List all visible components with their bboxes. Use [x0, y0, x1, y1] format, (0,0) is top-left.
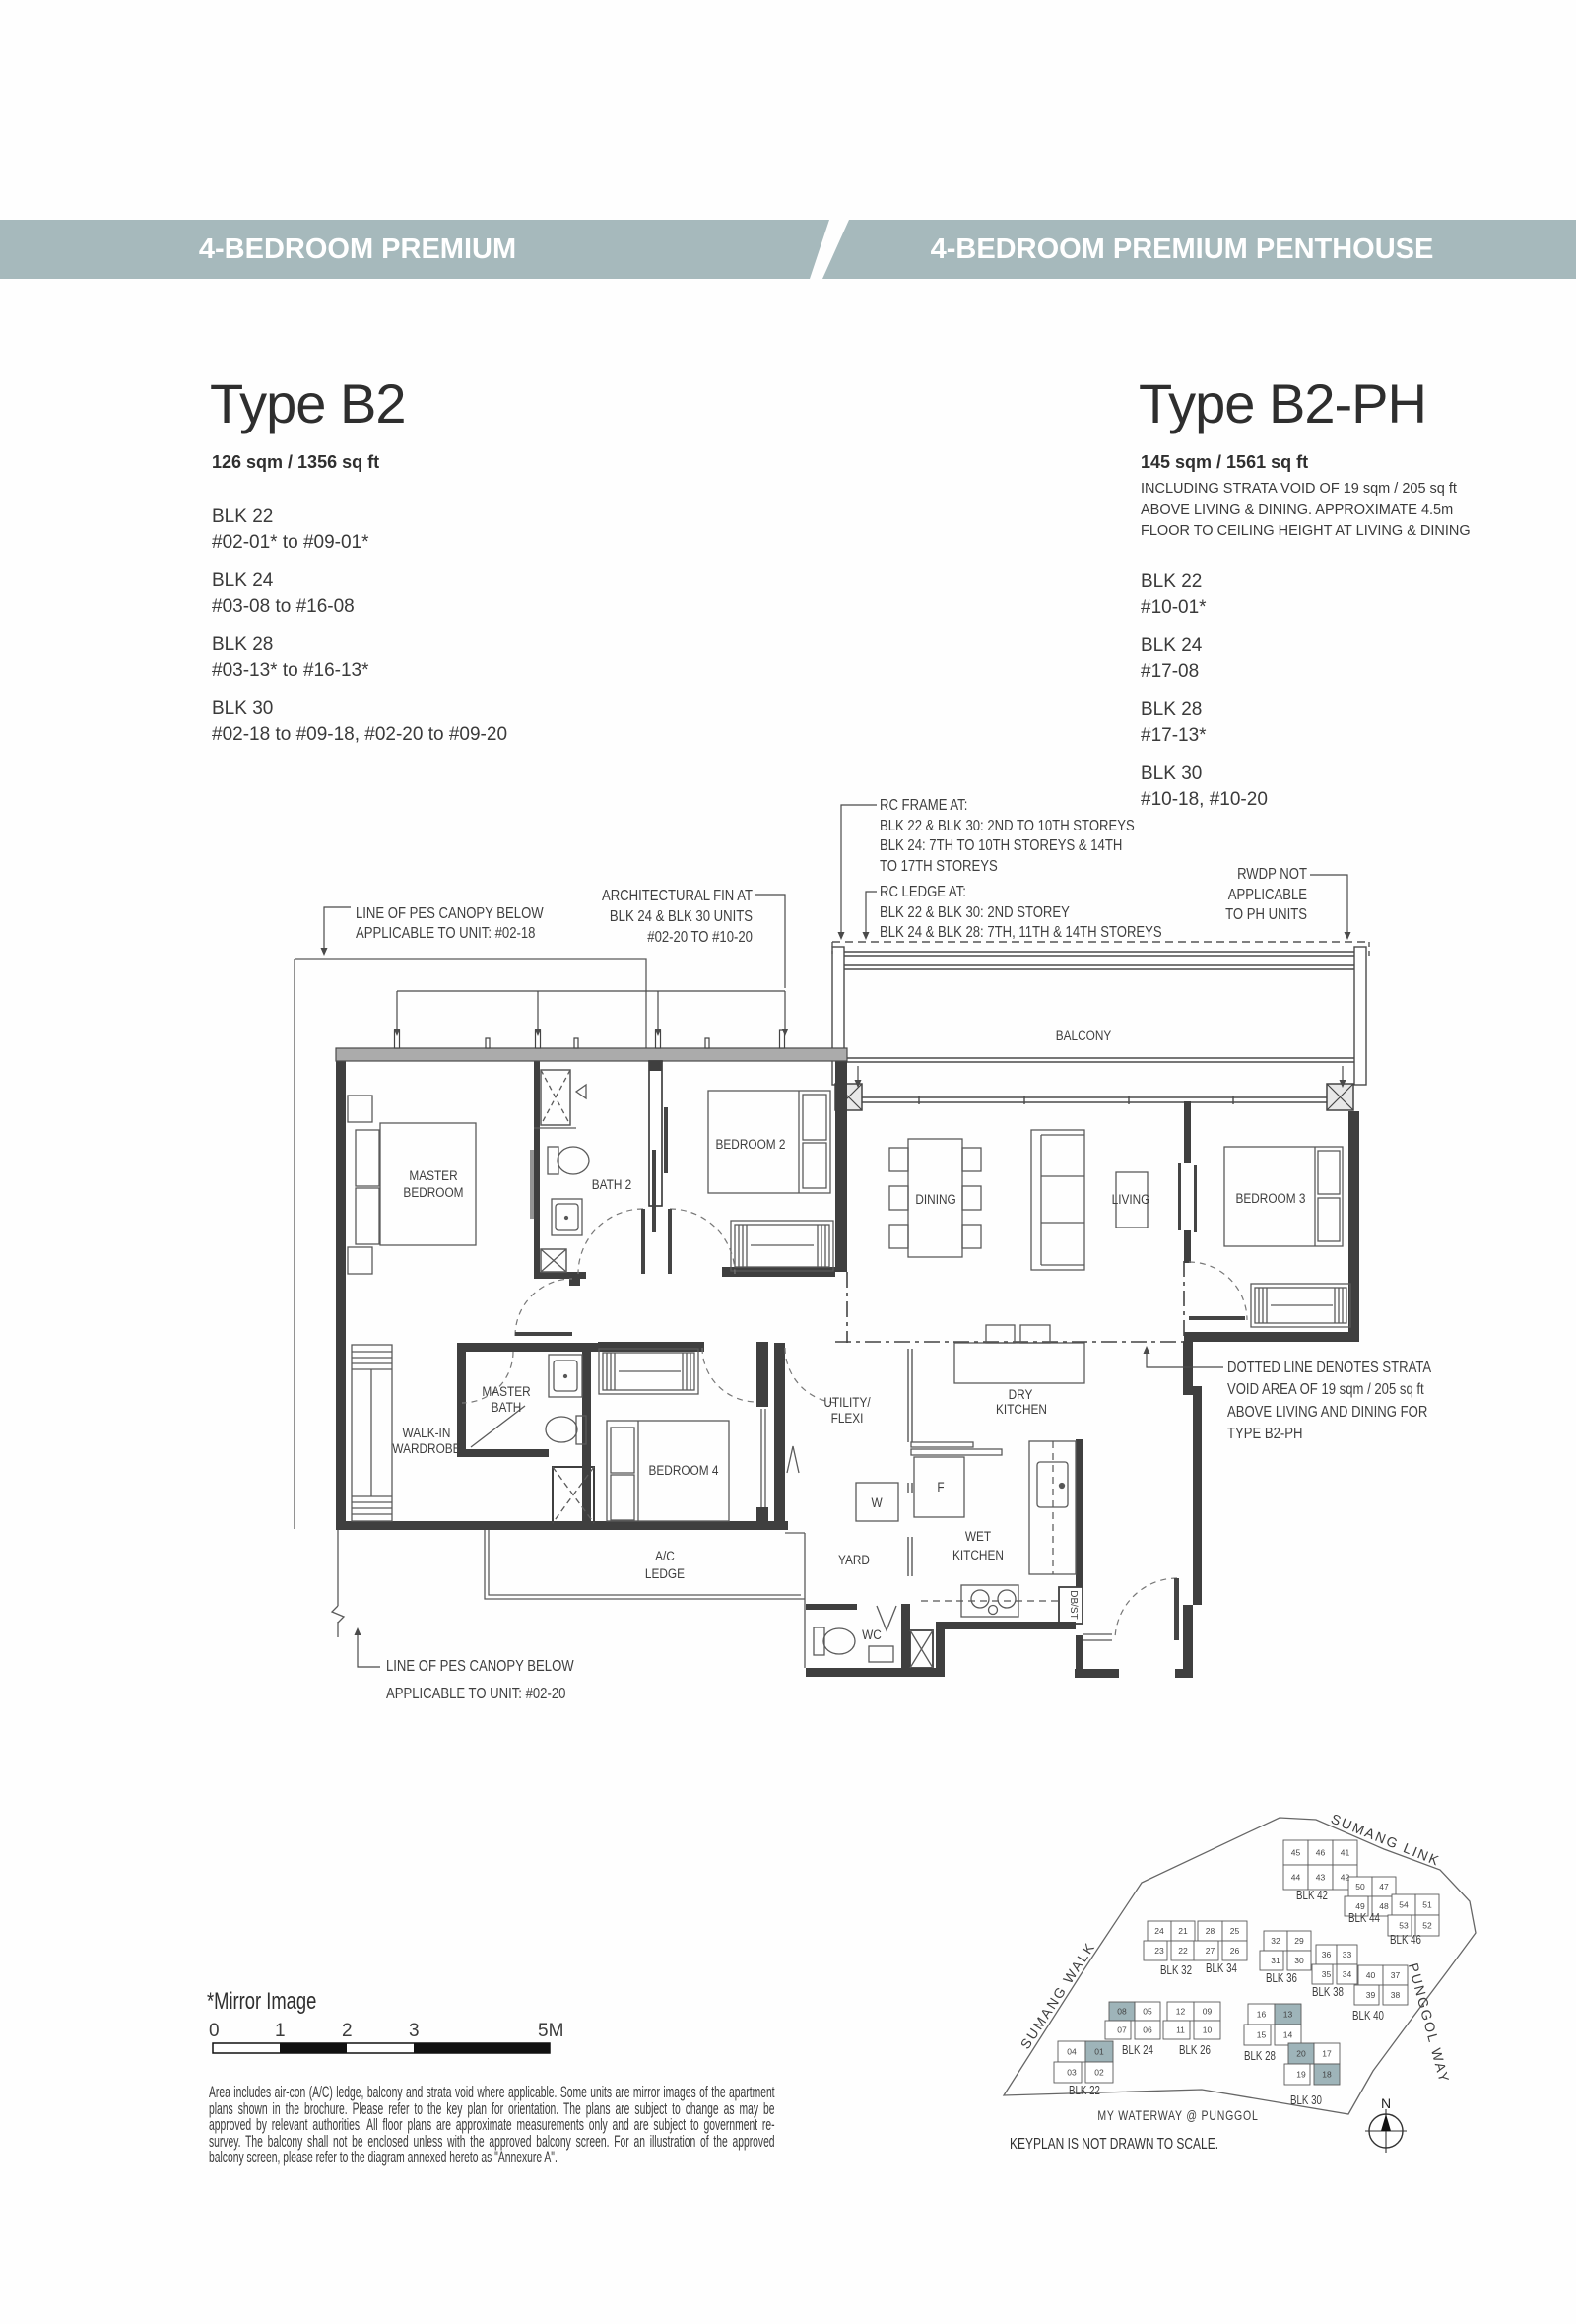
svg-text:38: 38 [1391, 1990, 1401, 2000]
svg-text:#02-20 TO #10-20: #02-20 TO #10-20 [647, 929, 753, 946]
svg-text:46: 46 [1316, 1848, 1326, 1858]
svg-text:WARDROBE: WARDROBE [392, 1440, 461, 1456]
svg-text:23: 23 [1154, 1946, 1164, 1956]
svg-text:KITCHEN: KITCHEN [952, 1547, 1004, 1562]
svg-text:YARD: YARD [838, 1552, 870, 1567]
svg-text:18: 18 [1322, 2070, 1332, 2080]
svg-text:BLK 30: BLK 30 [1290, 2094, 1322, 2107]
svg-text:39: 39 [1366, 1990, 1376, 2000]
svg-text:32: 32 [1271, 1936, 1280, 1946]
svg-text:BATH 2: BATH 2 [592, 1176, 632, 1192]
svg-text:SUMANG WALK: SUMANG WALK [1018, 1939, 1098, 2052]
svg-text:13: 13 [1283, 2010, 1293, 2020]
svg-text:35: 35 [1322, 1969, 1332, 1979]
svg-text:29: 29 [1294, 1936, 1304, 1946]
svg-text:07: 07 [1117, 2025, 1127, 2035]
svg-text:34: 34 [1343, 1969, 1352, 1979]
svg-text:W: W [871, 1494, 883, 1510]
svg-text:26: 26 [1230, 1946, 1240, 1956]
svg-text:VOID AREA OF 19 sqm / 205 sq f: VOID AREA OF 19 sqm / 205 sq ft [1227, 1381, 1424, 1398]
svg-text:LIVING: LIVING [1112, 1191, 1150, 1207]
svg-text:BLK 44: BLK 44 [1348, 1912, 1380, 1925]
svg-text:BLK 46: BLK 46 [1390, 1934, 1421, 1947]
svg-text:LINE OF PES CANOPY BELOW: LINE OF PES CANOPY BELOW [356, 905, 544, 922]
svg-text:BEDROOM 2: BEDROOM 2 [716, 1136, 786, 1152]
svg-text:A/C: A/C [655, 1548, 675, 1563]
svg-text:BLK 38: BLK 38 [1312, 1986, 1344, 1999]
svg-text:41: 41 [1341, 1848, 1350, 1858]
svg-text:02: 02 [1094, 2068, 1104, 2078]
svg-text:MY WATERWAY @ PUNGGOL: MY WATERWAY @ PUNGGOL [1097, 2108, 1258, 2124]
svg-text:54: 54 [1399, 1900, 1409, 1910]
svg-text:RWDP NOT: RWDP NOT [1237, 866, 1307, 883]
svg-text:N: N [1381, 2095, 1391, 2111]
svg-text:30: 30 [1294, 1956, 1304, 1965]
svg-text:05: 05 [1143, 2007, 1152, 2017]
svg-text:27: 27 [1206, 1946, 1215, 1956]
svg-text:33: 33 [1343, 1950, 1352, 1959]
svg-text:42: 42 [1341, 1873, 1350, 1883]
svg-text:KEYPLAN IS NOT DRAWN TO SCALE.: KEYPLAN IS NOT DRAWN TO SCALE. [1010, 2134, 1218, 2152]
svg-text:04: 04 [1067, 2047, 1077, 2057]
svg-text:BEDROOM 3: BEDROOM 3 [1236, 1190, 1306, 1206]
svg-text:09: 09 [1203, 2007, 1213, 2017]
svg-text:08: 08 [1117, 2007, 1127, 2017]
svg-text:APPLICABLE TO UNIT: #02-18: APPLICABLE TO UNIT: #02-18 [356, 925, 535, 942]
svg-text:RC FRAME AT:: RC FRAME AT: [880, 797, 967, 814]
svg-text:BLK 34: BLK 34 [1206, 1962, 1237, 1975]
svg-text:BLK 40: BLK 40 [1352, 2010, 1384, 2023]
svg-text:APPLICABLE: APPLICABLE [1228, 887, 1307, 903]
svg-text:20: 20 [1296, 2049, 1306, 2059]
svg-text:BEDROOM: BEDROOM [403, 1184, 463, 1200]
svg-text:49: 49 [1355, 1901, 1365, 1911]
svg-text:53: 53 [1399, 1921, 1409, 1931]
svg-text:BLK 22 & BLK 30: 2ND TO 10TH S: BLK 22 & BLK 30: 2ND TO 10TH STOREYS [880, 818, 1135, 834]
svg-text:BLK 22: BLK 22 [1069, 2085, 1100, 2097]
svg-text:03: 03 [1067, 2068, 1077, 2078]
svg-text:43: 43 [1316, 1873, 1326, 1883]
svg-text:12: 12 [1176, 2007, 1186, 2017]
svg-text:ARCHITECTURAL FIN AT: ARCHITECTURAL FIN AT [602, 888, 753, 904]
svg-text:APPLICABLE TO UNIT: #02-20: APPLICABLE TO UNIT: #02-20 [386, 1686, 565, 1702]
svg-text:FLEXI: FLEXI [831, 1410, 864, 1426]
svg-text:16: 16 [1257, 2010, 1267, 2020]
svg-text:TO 17TH STOREYS: TO 17TH STOREYS [880, 858, 998, 875]
svg-text:25: 25 [1230, 1926, 1240, 1936]
svg-text:45: 45 [1291, 1848, 1301, 1858]
svg-text:BLK 24 & BLK 28: 7TH, 11TH & 1: BLK 24 & BLK 28: 7TH, 11TH & 14TH STOREY… [880, 924, 1162, 941]
svg-text:BLK 32: BLK 32 [1160, 1964, 1192, 1977]
svg-text:WC: WC [862, 1627, 882, 1642]
svg-text:RC LEDGE AT:: RC LEDGE AT: [880, 884, 966, 900]
svg-text:06: 06 [1143, 2025, 1152, 2035]
svg-text:BALCONY: BALCONY [1056, 1028, 1112, 1043]
svg-text:BEDROOM 4: BEDROOM 4 [649, 1462, 719, 1478]
svg-text:TO PH UNITS: TO PH UNITS [1225, 906, 1307, 923]
svg-text:37: 37 [1391, 1970, 1401, 1980]
svg-text:BLK 42: BLK 42 [1296, 1890, 1328, 1902]
svg-text:52: 52 [1422, 1921, 1432, 1931]
svg-text:KITCHEN: KITCHEN [996, 1401, 1047, 1417]
svg-text:WALK-IN: WALK-IN [403, 1425, 451, 1440]
svg-text:ABOVE LIVING AND DINING FOR: ABOVE LIVING AND DINING FOR [1227, 1404, 1427, 1421]
svg-text:14: 14 [1283, 2030, 1293, 2040]
svg-text:LINE OF PES CANOPY BELOW: LINE OF PES CANOPY BELOW [386, 1658, 574, 1675]
svg-text:BLK 28: BLK 28 [1244, 2050, 1276, 2063]
svg-text:BLK 36: BLK 36 [1266, 1972, 1297, 1985]
svg-text:DB/ST: DB/ST [1068, 1590, 1079, 1619]
svg-text:DRY: DRY [1009, 1386, 1033, 1402]
svg-text:40: 40 [1366, 1970, 1376, 1980]
svg-text:BLK 24: BLK 24 [1122, 2044, 1153, 2057]
svg-text:MASTER: MASTER [482, 1383, 530, 1399]
svg-text:22: 22 [1178, 1946, 1188, 1956]
svg-text:WET: WET [965, 1528, 991, 1544]
svg-text:50: 50 [1355, 1882, 1365, 1892]
svg-text:15: 15 [1257, 2030, 1267, 2040]
svg-text:BATH: BATH [492, 1399, 522, 1415]
svg-text:24: 24 [1154, 1926, 1164, 1936]
svg-text:UTILITY/: UTILITY/ [823, 1394, 871, 1410]
svg-text:11: 11 [1176, 2025, 1185, 2035]
svg-text:31: 31 [1271, 1956, 1280, 1965]
svg-text:36: 36 [1322, 1950, 1332, 1959]
svg-text:19: 19 [1296, 2070, 1306, 2080]
svg-text:BLK 24 & BLK 30 UNITS: BLK 24 & BLK 30 UNITS [610, 908, 753, 925]
svg-text:44: 44 [1291, 1873, 1301, 1883]
svg-text:48: 48 [1379, 1901, 1389, 1911]
svg-text:BLK 22 & BLK 30: 2ND STOREY: BLK 22 & BLK 30: 2ND STOREY [880, 904, 1070, 921]
svg-text:01: 01 [1094, 2047, 1104, 2057]
svg-text:LEDGE: LEDGE [645, 1565, 685, 1581]
svg-text:10: 10 [1203, 2025, 1213, 2035]
svg-text:BLK 24: 7TH TO 10TH STOREYS &: BLK 24: 7TH TO 10TH STOREYS & 14TH [880, 837, 1122, 854]
svg-text:DOTTED LINE DENOTES STRATA: DOTTED LINE DENOTES STRATA [1227, 1360, 1431, 1376]
svg-text:17: 17 [1322, 2049, 1332, 2059]
svg-text:28: 28 [1206, 1926, 1215, 1936]
svg-text:DINING: DINING [915, 1191, 955, 1207]
svg-text:F: F [937, 1479, 944, 1494]
svg-text:51: 51 [1422, 1900, 1432, 1910]
svg-text:BLK 26: BLK 26 [1179, 2044, 1211, 2057]
svg-text:21: 21 [1178, 1926, 1188, 1936]
svg-text:47: 47 [1379, 1882, 1389, 1892]
svg-text:TYPE B2-PH: TYPE B2-PH [1227, 1426, 1303, 1442]
svg-text:PUNGGOL WAY: PUNGGOL WAY [1406, 1961, 1453, 2086]
svg-text:MASTER: MASTER [409, 1167, 457, 1183]
